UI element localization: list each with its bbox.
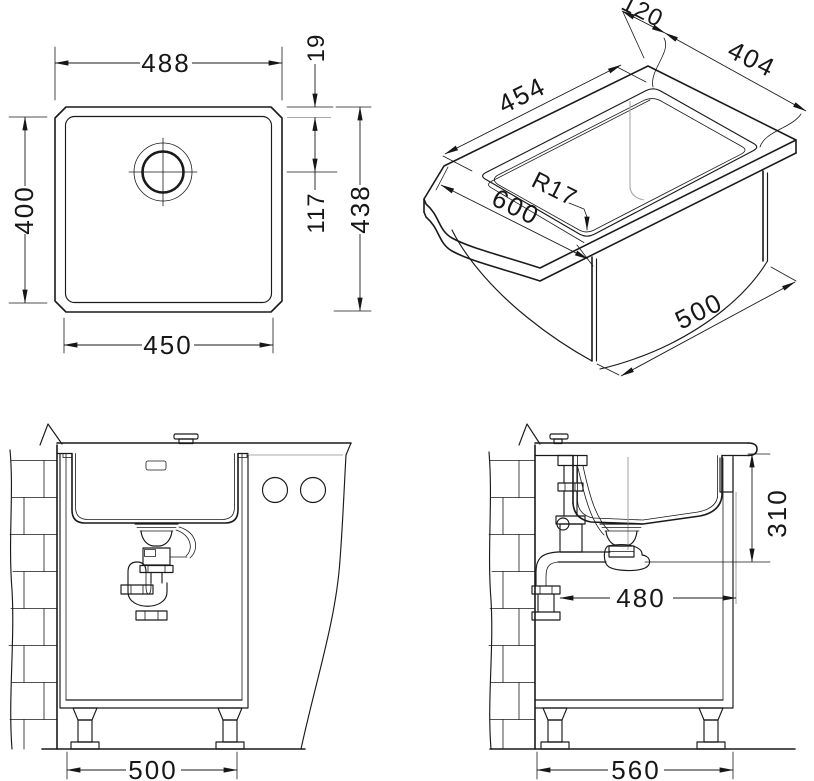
dim-label-450: 450 (143, 330, 192, 360)
plan-view: 488 450 400 19 117 (9, 34, 375, 360)
overflow-slot (146, 461, 166, 470)
dim-label-310: 310 (762, 488, 792, 537)
dim-label-480: 480 (616, 583, 665, 613)
dim-cabinet-width-iso: 500 (597, 267, 796, 376)
cabinet-front (60, 454, 248, 750)
side-section-view: 310 480 560 (489, 424, 795, 781)
dim-label-117: 117 (303, 192, 330, 233)
cabinet-leg-left (71, 708, 99, 749)
dim-label-19: 19 (303, 34, 330, 63)
technical-drawing: 488 450 400 19 117 (0, 0, 814, 781)
dim-label-438: 438 (345, 184, 375, 233)
dim-rim-and-drain-offset: 19 117 (287, 34, 337, 234)
dim-height-to-waste: 310 (645, 454, 792, 562)
dim-label-404: 404 (723, 34, 781, 83)
dim-clearance: 480 (560, 583, 736, 613)
overflow-pipe-arc (179, 527, 196, 558)
waste-outlet-to-wall (532, 552, 610, 620)
basin-front-section (63, 454, 247, 524)
dim-cabinet-width-front: 500 (67, 752, 237, 781)
service-hole-right (301, 478, 326, 503)
brick-wall-left (9, 424, 62, 749)
dim-basin-width: 450 (64, 318, 273, 360)
p-trap (121, 562, 167, 620)
dim-outer-height: 438 (334, 107, 375, 311)
basin-edge (66, 117, 272, 303)
dim-outer-width: 488 (55, 47, 282, 100)
dim-label-500-front: 500 (128, 755, 177, 781)
sink-outer-rim (55, 107, 282, 312)
overflow-standpipe (556, 456, 587, 553)
dim-label-400: 400 (9, 185, 39, 234)
cabinet-leg-right (216, 708, 244, 749)
dim-cabinet-depth: 560 (537, 752, 733, 781)
service-hole-left (263, 478, 288, 503)
dim-label-120: 120 (617, 0, 668, 33)
dim-back-clearance: 120 (617, 0, 668, 87)
dim-basin-height: 400 (9, 117, 47, 303)
tap-hole-plug-front (174, 434, 198, 444)
dim-cutout-depth: 404 (665, 33, 806, 147)
cabinet-leg-back (541, 708, 569, 749)
basin-corner-seam (630, 101, 644, 200)
drain-and-trap-front (121, 524, 196, 620)
dim-label-454: 454 (493, 70, 551, 119)
break-line-right (301, 455, 346, 749)
dim-label-488: 488 (141, 48, 190, 78)
isometric-view: 454 120 404 600 500 R17 (424, 0, 806, 376)
drain-side (600, 524, 650, 571)
worktop-front (57, 443, 351, 455)
worktop (424, 66, 796, 281)
sink-technical-drawing-page: 488 450 400 19 117 (0, 0, 814, 781)
cabinet-leg-front (697, 708, 725, 749)
worktop-side (535, 443, 757, 456)
tap-hole-plug-side (550, 434, 568, 444)
drain (129, 138, 197, 206)
front-elevation-view: 500 (9, 424, 351, 781)
dim-label-560: 560 (611, 755, 660, 781)
